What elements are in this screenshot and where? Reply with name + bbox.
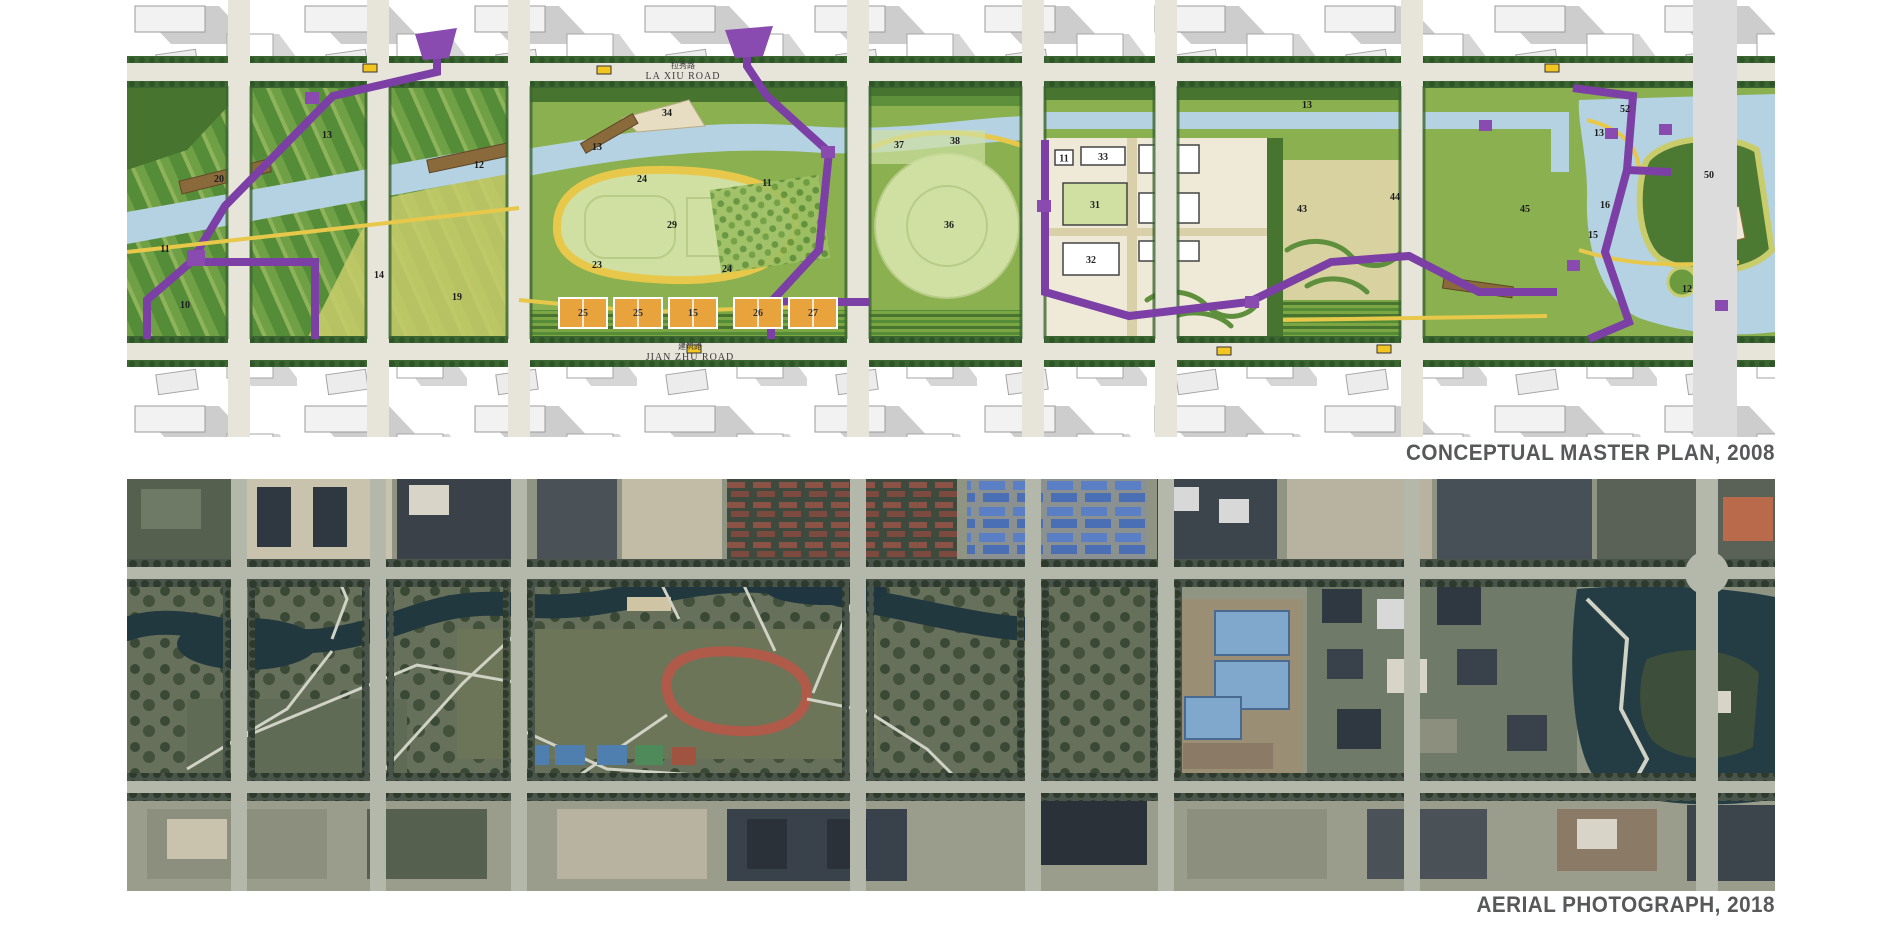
aerial-blue-pools-lot: [1175, 599, 1303, 775]
plan-number-label: 13: [322, 130, 332, 141]
plan-number-label: 20: [214, 174, 224, 185]
plan-number-label: 43: [1297, 204, 1307, 215]
plan-building-number: 33: [1098, 152, 1108, 163]
plan-number-label: 29: [667, 220, 677, 231]
aerial-photo-panel: [127, 479, 1775, 891]
plan-number-label: 16: [1600, 200, 1610, 211]
plan-building-number: 11: [1059, 154, 1068, 165]
road-label-en-bottom: JIAN ZHU ROAD: [646, 352, 735, 363]
plan-number-label: 45: [1520, 204, 1530, 215]
plan-number-label: 37: [894, 140, 904, 151]
road-label-zh-top: 拉秀路: [671, 60, 695, 70]
plan-number-label: 24: [722, 264, 732, 275]
plan-number-label: 34: [662, 108, 672, 119]
aerial-city-blocks-right: [1307, 579, 1577, 779]
plan-court-number: 25: [578, 308, 588, 319]
plan-number-label: 11: [160, 244, 169, 255]
plan-number-label: 13: [1302, 100, 1312, 111]
plan-number-label: 23: [592, 260, 602, 271]
plan-number-label: 36: [944, 220, 954, 231]
plan-number-label: 10: [180, 300, 190, 311]
plan-number-label: 19: [452, 292, 462, 303]
plan-court-number: 27: [808, 308, 818, 319]
plan-number-label: 12: [1682, 284, 1692, 295]
plan-number-label: 44: [1390, 192, 1400, 203]
aerial-photo-image: [127, 479, 1775, 891]
master-plan-panel: 11331531223242: [127, 0, 1775, 437]
road-label-zh-bottom: 建筑路: [678, 341, 702, 351]
plan-number-label: 13: [592, 142, 602, 153]
master-plan-image: 11331531223242: [127, 0, 1775, 437]
plan-court-number: 26: [753, 308, 763, 319]
plan-number-label: 14: [374, 270, 384, 281]
figure-page: 11331531223242: [0, 0, 1900, 927]
master-plan-caption: CONCEPTUAL MASTER PLAN, 2008: [226, 440, 1775, 466]
aerial-lake: [1572, 586, 1775, 804]
plan-number-label: 24: [637, 174, 647, 185]
plan-number-label: 13: [1594, 128, 1604, 139]
plan-sport-courts: 2525152627: [559, 298, 837, 328]
plan-number-label: 50: [1704, 170, 1714, 181]
plan-court-number: 25: [633, 308, 643, 319]
aerial-photo-caption: AERIAL PHOTOGRAPH, 2018: [226, 892, 1775, 918]
plan-building-number: 32: [1086, 255, 1096, 266]
plan-number-label: 12: [474, 160, 484, 171]
aerial-running-track: [667, 651, 807, 731]
plan-number-label: 52: [1620, 104, 1630, 115]
road-label-en-top: LA XIU ROAD: [646, 71, 721, 82]
plan-number-label: 15: [1588, 230, 1598, 241]
plan-number-label: 11: [762, 178, 771, 189]
plan-building-number: 31: [1090, 200, 1100, 211]
plan-court-number: 15: [688, 308, 698, 319]
plan-number-label: 38: [950, 136, 960, 147]
